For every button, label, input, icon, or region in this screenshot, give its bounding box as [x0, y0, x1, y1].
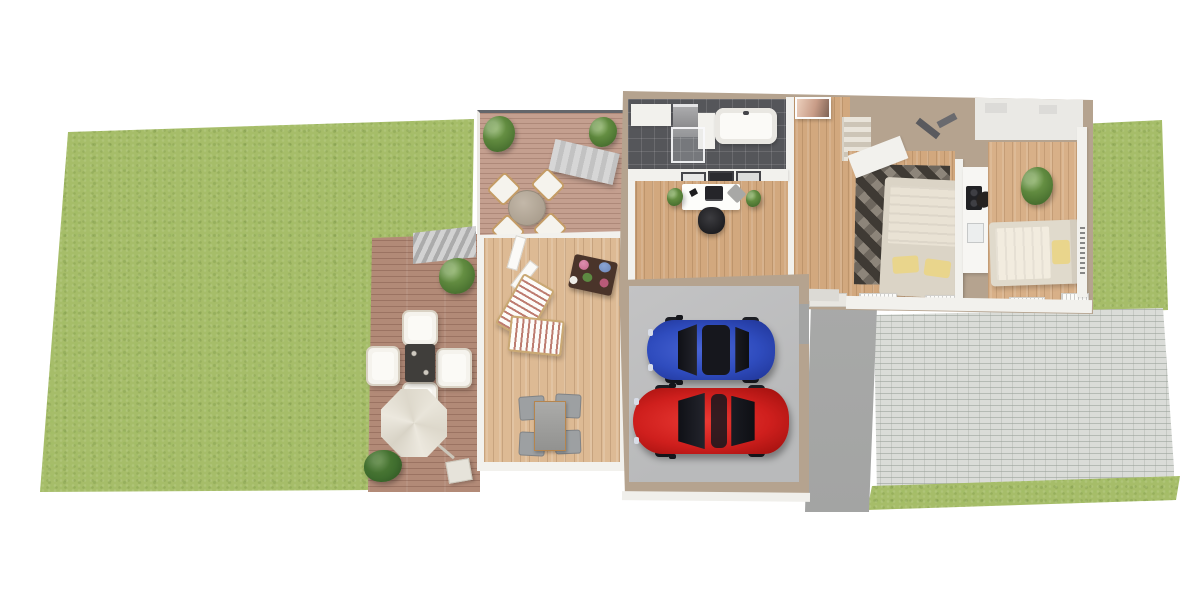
side-mirror [669, 383, 676, 388]
driveway [869, 303, 1174, 495]
garage-foundation-strip [622, 491, 810, 502]
headlight [634, 398, 639, 405]
balcony-dining-set [492, 172, 560, 242]
vertical-label-mark [1080, 227, 1085, 275]
headlight [648, 329, 653, 336]
bathroom-cabinet [631, 104, 671, 126]
entrance-walkway [797, 297, 881, 512]
side-mirror [669, 454, 676, 459]
flower-pot [569, 275, 578, 284]
deck-armchair-west [366, 346, 400, 386]
interior-doorway-shadow [937, 113, 958, 129]
terrace-dining-set [519, 392, 579, 458]
parasol [381, 389, 447, 457]
flower-blue [598, 261, 612, 273]
top-right-fixture [985, 103, 1007, 113]
garage-side-opening [799, 304, 809, 344]
bed1-blanket [888, 185, 961, 247]
top-right-fixture [1039, 105, 1057, 114]
car-blue [647, 317, 775, 383]
windshield [678, 393, 705, 449]
headlight [634, 437, 639, 444]
deck-armchair-north [402, 310, 438, 346]
flower-pink [578, 259, 590, 271]
flower-pink [599, 278, 610, 289]
lounger [507, 315, 564, 356]
side-mirror [676, 315, 683, 320]
rear-window [731, 396, 754, 446]
shower [671, 127, 705, 163]
rear-window [735, 327, 749, 373]
floorplan-render [0, 0, 1200, 600]
deck-armchair-east [436, 348, 472, 388]
bed2-blanket [995, 226, 1051, 280]
sunroof [711, 394, 727, 449]
bedroom1-kitchen-wall [955, 159, 963, 301]
car-red [633, 385, 789, 457]
dining-table [534, 401, 566, 451]
pillow [923, 258, 951, 278]
office-chair [698, 207, 725, 234]
bed2 [989, 219, 1079, 286]
sunroof [702, 325, 730, 375]
bed1 [879, 177, 967, 299]
kitchen-counter [963, 167, 988, 273]
deck-coffee-table [405, 344, 435, 382]
flower-leaves [582, 272, 594, 283]
windshield [678, 324, 697, 375]
pillow [892, 255, 919, 274]
monitor [705, 186, 723, 201]
pillow [1052, 240, 1071, 265]
parasol-base [445, 458, 472, 484]
wall-art [795, 97, 831, 119]
kitchen-sink [967, 223, 984, 243]
bathtub-faucet [743, 111, 749, 115]
headlight [648, 364, 653, 371]
